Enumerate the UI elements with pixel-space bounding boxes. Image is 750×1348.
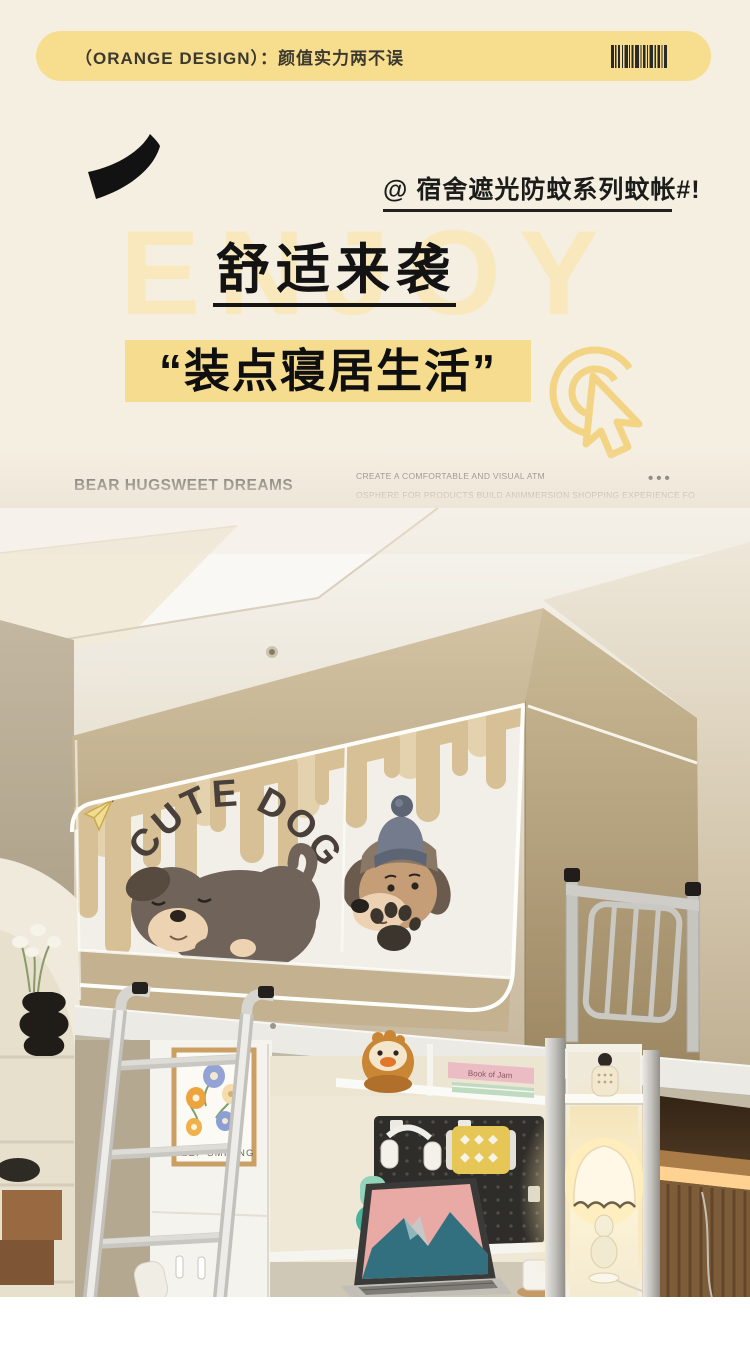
brush-stroke-icon [78,128,173,212]
series-tagline: @ 宿舍遮光防蚊系列蚊帐#! [383,170,701,206]
bottom-margin [0,1297,750,1348]
promo-page: （ORANGE DESIGN）：颜值实力两不误 @ 宿舍遮光防蚊系列蚊帐#! E… [0,0,750,1348]
wardrobe-handle [176,1256,183,1278]
bed-post [545,1038,565,1298]
desk-nook: Book of Jam [270,1030,555,1298]
title-underline [213,303,456,307]
photo-top-fade [0,508,750,554]
slogan-text: “装点寝居生活” [125,340,531,402]
main-title: 舒适来袭 [216,240,456,300]
wood-wall [660,1096,750,1298]
product-photo-loft-bed: CUTE DOG [0,508,750,1298]
wardrobe-handle [198,1257,205,1279]
storage-box [2,1190,62,1240]
banner-label: （ORANGE DESIGN）：颜值实力两不误 [75,44,404,69]
desk-organizer [446,1126,516,1174]
slogan-highlight: “装点寝居生活” [125,340,531,402]
wardrobe: KEEP SMILING [150,1040,272,1298]
bed-post [643,1050,660,1298]
photo-fade [0,448,750,508]
promo-banner: （ORANGE DESIGN）：颜值实力两不误 [36,31,711,81]
barcode-icon [611,45,669,68]
storage-box [0,1240,54,1285]
